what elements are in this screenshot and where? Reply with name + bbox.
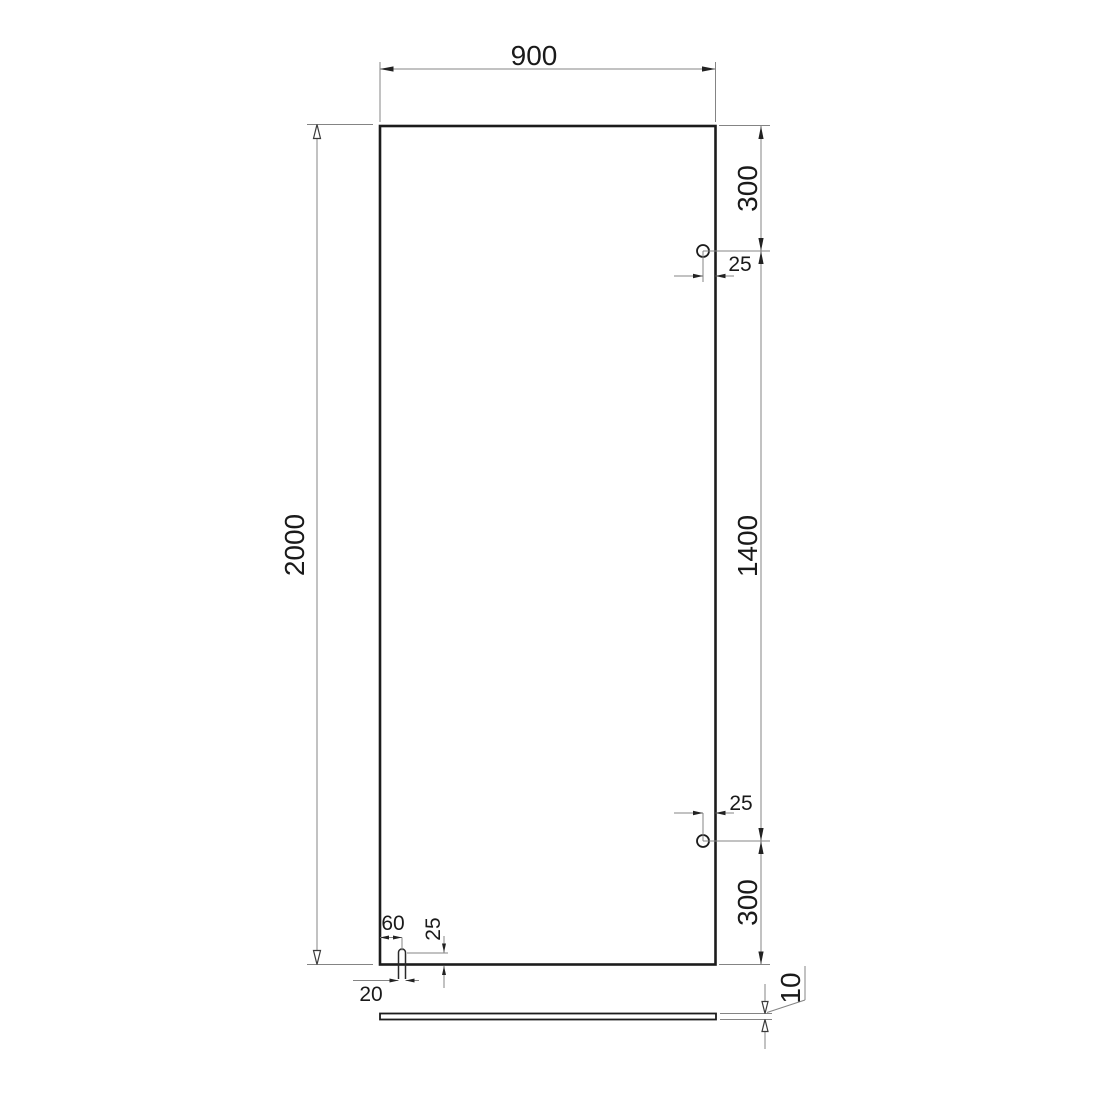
arrowhead-up-icon <box>758 841 763 854</box>
front-view <box>380 126 716 965</box>
arrowhead-left-icon <box>716 811 726 815</box>
dim-label-top-hole-from-edge: 25 <box>728 253 751 276</box>
dim-label-hole-to-hole: 1400 <box>732 515 763 577</box>
arrowhead-down-icon <box>314 951 321 965</box>
dim-label-panel-height: 2000 <box>279 514 310 576</box>
arrowhead-down-icon <box>758 952 763 965</box>
arrowhead-right-icon <box>702 66 716 71</box>
arrowhead-up-icon <box>442 966 446 975</box>
glass-edge-outline <box>380 1014 716 1020</box>
arrowhead-left-icon <box>716 274 726 278</box>
glass-panel-dimension-drawing: 900 2000 300 1400 300 <box>0 0 1100 1100</box>
arrowhead-right-icon <box>390 979 399 983</box>
dim-label-slot-depth: 25 <box>422 917 445 940</box>
arrowhead-down-icon <box>758 828 763 841</box>
panel-outline <box>380 126 716 965</box>
arrowhead-up-icon <box>758 251 763 264</box>
arrowhead-up-icon <box>762 1020 768 1032</box>
technical-drawing-canvas: 900 2000 300 1400 300 <box>0 0 1100 1100</box>
edge-view <box>380 1014 716 1020</box>
dim-label-bottom-hole-from-bottom: 300 <box>732 879 763 926</box>
arrowhead-left-icon <box>380 66 394 71</box>
arrowhead-down-icon <box>762 1002 768 1014</box>
height-dimension: 2000 <box>279 125 373 965</box>
dim-label-slot-width: 20 <box>359 983 382 1006</box>
arrowhead-up-icon <box>758 126 763 139</box>
dim-label-panel-width: 900 <box>511 40 558 71</box>
dim-label-slot-center-from-left: 60 <box>381 912 404 935</box>
arrowhead-up-icon <box>314 125 321 139</box>
dim-label-top-hole-from-top: 300 <box>732 165 763 212</box>
width-dimension: 900 <box>380 40 716 122</box>
arrowhead-left-icon <box>406 979 415 983</box>
thickness-dimension: 10 <box>720 966 806 1049</box>
arrowhead-down-icon <box>758 238 763 251</box>
dim-label-bottom-hole-from-edge: 25 <box>729 792 752 815</box>
dim-label-glass-thickness: 10 <box>775 972 806 1003</box>
